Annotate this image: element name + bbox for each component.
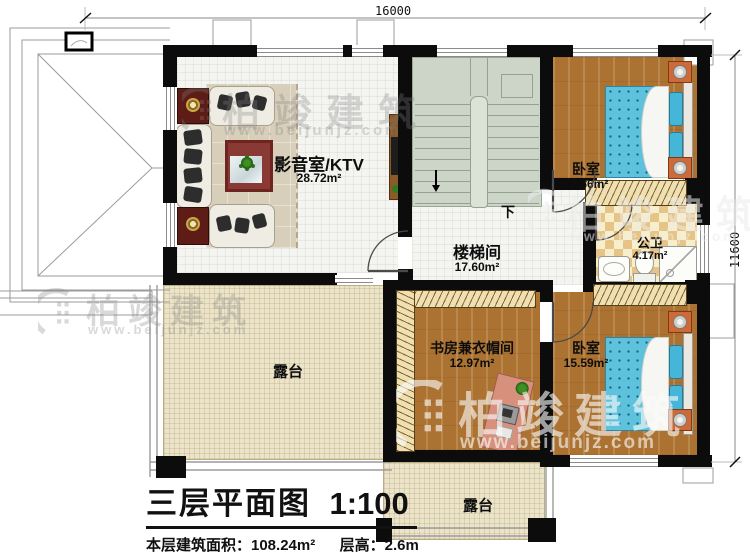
wall-mediaroom-right [398,45,412,237]
dimension-top-value: 16000 [375,4,411,18]
corridor-floor [553,190,583,205]
study-area: 12.97m² [450,356,495,370]
coffee-table [225,140,273,192]
plan-title-underline: 三层平面图 1:100 [146,478,417,529]
nightstand [668,311,692,333]
title-block: 三层平面图 1:100 本层建筑面积：108.24m² 层高：2.6m [146,478,419,553]
stair-rail-extension [470,58,488,96]
wall-study-left [383,280,396,462]
wall-stair-right [540,45,553,178]
plant-icon [514,381,530,397]
stair-landing-outline [501,74,533,98]
wardrobe [408,290,536,308]
stair-handrail [470,96,488,208]
wall-mediaroom-bottom [163,273,337,285]
nightstand [668,61,692,83]
bedroom-top-name: 卧室 [572,159,600,179]
wall-bedroombottom-left-lower [540,342,553,467]
bed-pillow [669,345,683,379]
sofa-cushion [251,213,267,230]
down-arrow-head-icon [432,185,440,192]
computer-monitor-icon [496,403,520,425]
bed-sheet [641,86,669,178]
window [570,455,658,467]
dimension-right-value: 11600 [728,232,742,268]
sink-icon [598,256,630,282]
down-arrow-icon [435,170,437,186]
bathroom-name: 公卫 [637,233,663,252]
plan-title: 三层平面图 [146,486,311,521]
bedroom-bottom-area: 15.59m² [564,356,609,370]
sofa-cushion [234,217,250,234]
terrace-column [528,518,556,542]
study-name: 书房兼衣帽间 [430,338,514,358]
nightstand [668,409,692,431]
wardrobe [593,284,687,306]
terrace-bottom-name: 露台 [463,495,493,516]
window [257,45,343,57]
bed-sheet [641,337,669,431]
window [335,275,373,283]
stair-flight-right [486,104,539,204]
media-room-area: 28.72m² [297,171,342,185]
staircase [412,57,542,207]
sofa-cushion [216,215,233,233]
plan-scale: 1:100 [329,486,408,521]
sofa-cushion [183,167,202,184]
sofa-bottom [209,204,275,248]
bedroom-bottom-name: 卧室 [572,338,600,358]
lower-eave-lines [0,291,152,315]
terrace-left-name: 露台 [273,361,303,382]
stairwell-area: 17.60m² [455,260,500,274]
sofa-cushion [183,129,203,146]
sink-basin [603,262,625,276]
monitor-screen [501,408,513,418]
sofa-cushion [217,94,234,112]
nightstand [668,157,692,179]
speaker-icon [177,207,209,245]
plan-subtitle: 本层建筑面积：108.24m² 层高：2.6m [146,534,419,553]
wall-left [163,45,177,285]
sofa-cushion [183,148,202,165]
bedroom-top-area: 12.66m² [564,177,609,191]
floor-height-text: 层高：2.6m [340,537,419,553]
floor-area-text: 本层建筑面积：108.24m² [146,537,315,553]
stair-flight-left [415,104,470,204]
stair-down-label: 下 [501,202,515,222]
watermark-logo-icon [38,288,74,340]
window [437,45,507,57]
window [163,203,177,247]
wall-bathroom-left [583,202,596,284]
plant-icon [241,157,253,169]
wardrobe [396,290,415,452]
window [163,87,177,130]
window [352,45,383,57]
window [697,225,710,273]
speaker-icon [177,88,209,124]
keyboard-icon [494,425,513,440]
floor-plan-canvas: 影音室/KTV 28.72m² 楼梯间 17.60m² 下 卧室 12.66m²… [0,0,750,553]
sofa-cushion [251,95,267,112]
sofa-cushion [235,91,251,108]
terrace-column [156,456,186,478]
chimney-icon [66,33,92,50]
sofa-top [209,86,275,126]
sofa-cushion [183,186,203,204]
sofa-left [176,124,212,208]
hip-roof-outline [10,28,172,302]
window [573,45,658,57]
bed-pillow [669,92,683,126]
shower-drain [666,269,674,277]
bathroom-area: 4.17m² [633,250,668,262]
